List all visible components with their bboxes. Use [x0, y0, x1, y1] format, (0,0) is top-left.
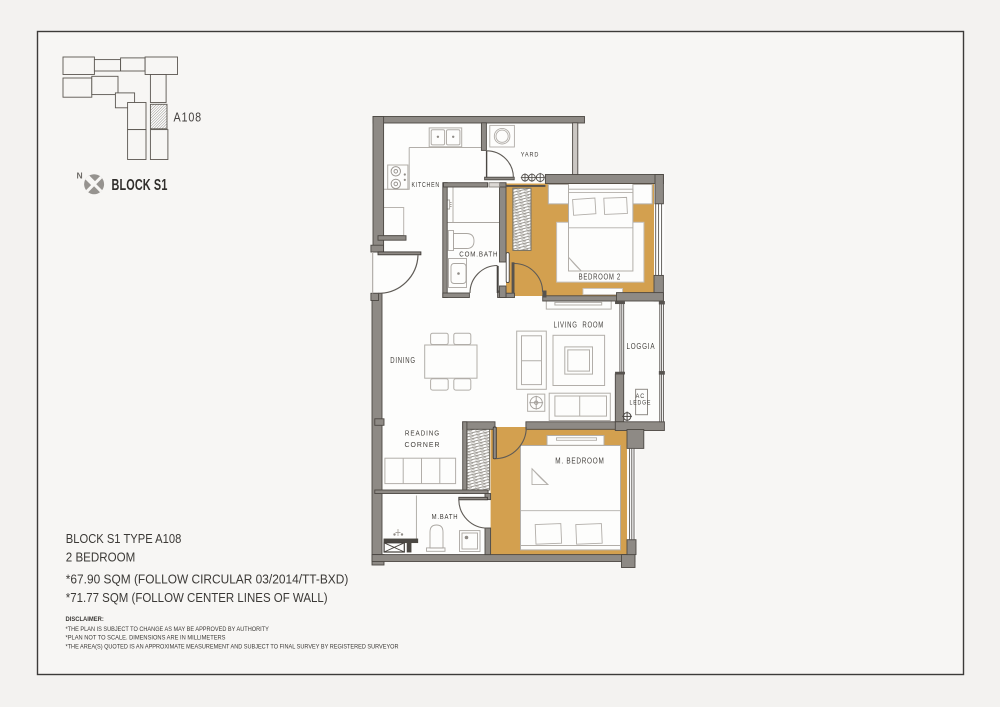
svg-text:*67.90 SQM (FOLLOW CIRCULAR 0: *67.90 SQM (FOLLOW CIRCULAR 03/2014/TT-B… — [66, 572, 349, 587]
svg-text:LEDGE: LEDGE — [630, 400, 652, 407]
svg-text:KITCHEN: KITCHEN — [412, 182, 440, 189]
svg-text:2 BEDROOM: 2 BEDROOM — [66, 550, 136, 565]
svg-text:COM.BATH: COM.BATH — [459, 250, 498, 259]
svg-text:M. BEDROOM: M. BEDROOM — [555, 456, 604, 466]
svg-text:READING: READING — [405, 431, 440, 438]
svg-text:BEDROOM 2: BEDROOM 2 — [579, 271, 621, 281]
svg-text:*PLAN NOT TO SCALE. DIMENSIONS: *PLAN NOT TO SCALE. DIMENSIONS ARE IN MI… — [66, 634, 227, 641]
svg-text:M.BATH: M.BATH — [432, 512, 459, 521]
svg-text:LOGGIA: LOGGIA — [626, 342, 655, 351]
svg-text:A108: A108 — [174, 110, 203, 125]
svg-text:*THE PLAN IS SUBJECT TO CHANGE: *THE PLAN IS SUBJECT TO CHANGE AS MAY BE… — [66, 626, 270, 633]
svg-text:LIVING ROOM: LIVING ROOM — [554, 319, 604, 329]
svg-text:DISCLAIMER:: DISCLAIMER: — [66, 616, 104, 623]
svg-text:N: N — [77, 171, 83, 181]
svg-text:BLOCK S1 TYPE A108: BLOCK S1 TYPE A108 — [66, 531, 182, 546]
svg-text:BLOCK S1: BLOCK S1 — [112, 177, 168, 194]
svg-text:*71.77 SQM (FOLLOW CENTER LIN: *71.77 SQM (FOLLOW CENTER LINES OF WALL) — [66, 590, 328, 605]
svg-text:YARD: YARD — [521, 151, 539, 158]
svg-text:DINING: DINING — [390, 356, 416, 365]
svg-text:*THE AREA(S) QUOTED IS AN APPR: *THE AREA(S) QUOTED IS AN APPROXIMATE ME… — [66, 643, 399, 650]
svg-text:CORNER: CORNER — [405, 442, 441, 449]
